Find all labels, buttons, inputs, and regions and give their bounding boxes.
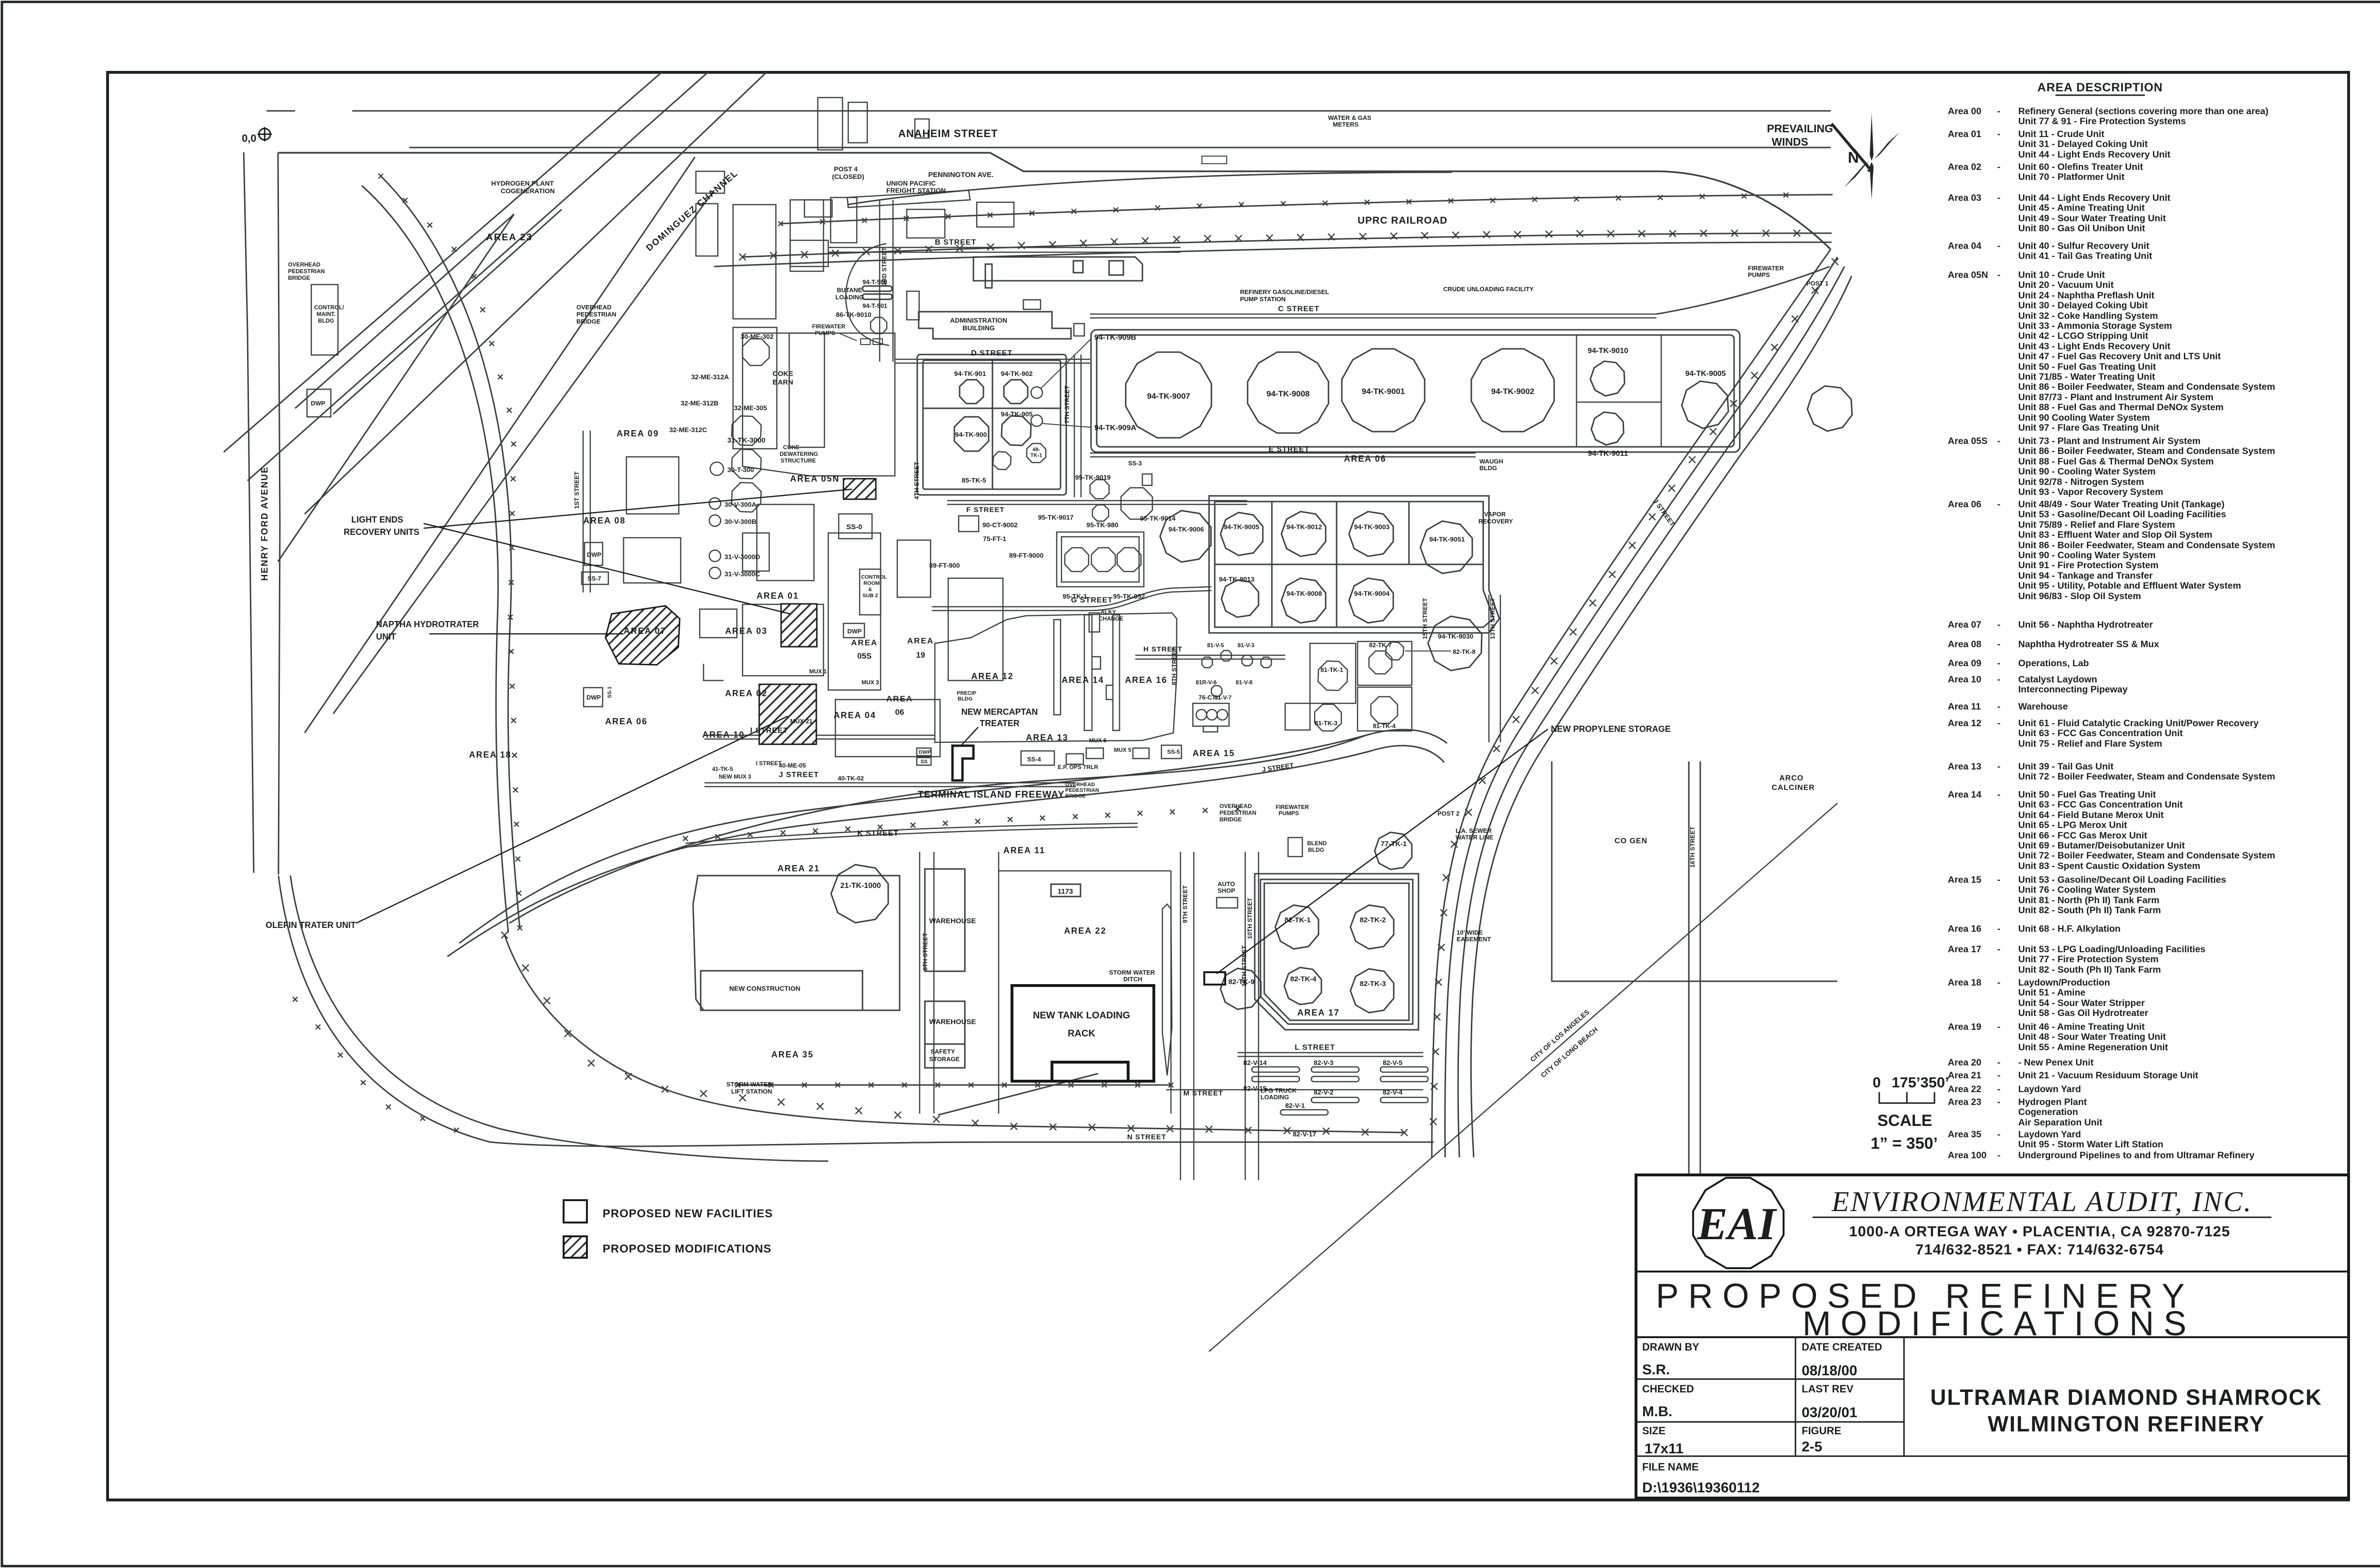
svg-text:EAI: EAI <box>1696 1198 1777 1249</box>
svg-text:STORM WATER: STORM WATER <box>1109 969 1155 976</box>
svg-text:PUMPS: PUMPS <box>1748 271 1770 278</box>
svg-text:STORM WATER: STORM WATER <box>726 1081 773 1088</box>
svg-text:DWP: DWP <box>311 400 326 407</box>
svg-text:Unit 64 - Field Butane Merox: Unit 64 - Field Butane Merox Unit <box>2018 810 2164 820</box>
svg-text:AREA 16: AREA 16 <box>1125 675 1167 685</box>
svg-text:Unit 87/73 - Plant and Instrum: Unit 87/73 - Plant and Instrument Air Sy… <box>2018 392 2213 403</box>
svg-text:LIGHT ENDS: LIGHT ENDS <box>351 515 403 524</box>
svg-text:SS: SS <box>921 759 928 765</box>
svg-text:Unit 73 - Plant and Instrume: Unit 73 - Plant and Instrument Air Syste… <box>2018 436 2201 446</box>
svg-text:95-TK-9014: 95-TK-9014 <box>1140 514 1176 522</box>
svg-text:Unit 86 - Boiler Feedwater,: Unit 86 - Boiler Feedwater, Steam and Co… <box>2018 382 2275 392</box>
svg-text:Unit 20 - Vacuum Unit: Unit 20 - Vacuum Unit <box>2018 280 2114 290</box>
svg-text:Unit 48 - Sour Water Treatin: Unit 48 - Sour Water Treating Unit <box>2018 1032 2166 1042</box>
svg-text:-: - <box>1997 944 2001 955</box>
svg-text:Area 01: Area 01 <box>1948 129 1982 139</box>
svg-text:-: - <box>1997 977 2001 988</box>
svg-text:94-TK-909B: 94-TK-909B <box>1094 334 1136 342</box>
svg-text:94-TK-9005: 94-TK-9005 <box>1685 370 1725 378</box>
svg-text:Area 09: Area 09 <box>1948 658 1982 669</box>
svg-text:BLDG: BLDG <box>1308 847 1324 853</box>
svg-text:94-TK-909A: 94-TK-909A <box>1094 424 1136 432</box>
svg-text:BLDG: BLDG <box>318 317 334 324</box>
svg-text:SCALE: SCALE <box>1877 1112 1932 1130</box>
svg-text:94-TK-902: 94-TK-902 <box>1001 370 1033 377</box>
svg-text:M STREET: M STREET <box>1183 1089 1223 1097</box>
svg-text:ULTRAMAR DIAMOND SHAMROCK: ULTRAMAR DIAMOND SHAMROCK <box>1930 1385 2322 1410</box>
svg-text:PEDESTRIAN: PEDESTRIAN <box>1065 788 1099 793</box>
svg-text:NEW TANK LOADING: NEW TANK LOADING <box>1033 1010 1130 1021</box>
svg-text:Unit 68 - H.F. Alkylation: Unit 68 - H.F. Alkylation <box>2018 924 2121 934</box>
svg-text:Unit 50 - Fuel Gas Treating: Unit 50 - Fuel Gas Treating Unit <box>2018 362 2156 372</box>
svg-text:Unit 65 - LPG Merox Unit: Unit 65 - LPG Merox Unit <box>2018 820 2127 830</box>
svg-text:G STREET: G STREET <box>1071 596 1113 604</box>
svg-text:-: - <box>1997 789 2001 800</box>
svg-text:AREA 35: AREA 35 <box>771 1050 813 1059</box>
svg-text:ARCO: ARCO <box>1779 774 1804 782</box>
svg-text:Unit 40 - Sulfur Recovery Un: Unit 40 - Sulfur Recovery Unit <box>2018 241 2150 251</box>
svg-text:32-ME-305: 32-ME-305 <box>734 404 767 412</box>
svg-text:-: - <box>1997 241 2001 251</box>
svg-text:BARN: BARN <box>773 378 793 386</box>
svg-text:CRUDE UNLOADING FACILITY: CRUDE UNLOADING FACILITY <box>1443 286 1534 293</box>
svg-text:Area 03: Area 03 <box>1948 193 1982 203</box>
svg-text:Area 05N: Area 05N <box>1948 270 1988 280</box>
svg-text:30-ME-302: 30-ME-302 <box>741 333 773 340</box>
svg-text:94-TK-9006: 94-TK-9006 <box>1169 525 1204 533</box>
svg-text:WAREHOUSE: WAREHOUSE <box>929 917 976 925</box>
svg-text:DEWATERING: DEWATERING <box>780 451 818 457</box>
svg-text:10TH STREET: 10TH STREET <box>1240 946 1248 987</box>
svg-text:PEDESTRIAN: PEDESTRIAN <box>288 268 325 275</box>
svg-text:&: & <box>868 587 872 592</box>
svg-text:Unit 96/83 - Slop Oil System: Unit 96/83 - Slop Oil System <box>2018 591 2141 602</box>
svg-text:AREA 06: AREA 06 <box>605 717 647 726</box>
svg-text:Unit 44 - Light Ends Recover: Unit 44 - Light Ends Recovery Unit <box>2018 193 2171 203</box>
svg-text:94-TK-9013: 94-TK-9013 <box>1219 575 1255 583</box>
svg-text:81-V-3: 81-V-3 <box>1238 642 1255 649</box>
svg-text:PRECIP: PRECIP <box>957 690 976 696</box>
svg-text:94-TK-9001: 94-TK-9001 <box>1362 387 1405 396</box>
svg-text:BRIDGE: BRIDGE <box>576 318 601 325</box>
svg-text:REFINERY GASOLINE/DIESEL: REFINERY GASOLINE/DIESEL <box>1240 288 1329 296</box>
svg-text:DITCH: DITCH <box>1123 976 1142 983</box>
svg-text:RACK: RACK <box>1068 1028 1095 1039</box>
svg-text:90-CT-9002: 90-CT-9002 <box>982 521 1018 529</box>
svg-text:Area 08: Area 08 <box>1948 639 1982 650</box>
svg-text:CONTROL: CONTROL <box>861 574 887 580</box>
svg-text:BUILDING: BUILDING <box>962 324 995 332</box>
svg-text:Area 14: Area 14 <box>1948 789 1982 800</box>
svg-text:WILMINGTON REFINERY: WILMINGTON REFINERY <box>1988 1411 2265 1436</box>
svg-text:AREA 14: AREA 14 <box>1061 675 1104 685</box>
svg-text:16TH STREET: 16TH STREET <box>1689 827 1696 868</box>
svg-text:L STREET: L STREET <box>1295 1044 1335 1052</box>
svg-text:Refinery General (sections cov: Refinery General (sections covering more… <box>2018 106 2269 117</box>
svg-text:1” = 350’: 1” = 350’ <box>1871 1134 1938 1153</box>
svg-text:40-TK-02: 40-TK-02 <box>838 775 864 782</box>
svg-text:ROOM: ROOM <box>863 581 880 586</box>
svg-text:BLEND: BLEND <box>1307 840 1327 847</box>
svg-text:MUX 1: MUX 1 <box>809 668 827 675</box>
svg-text:DWP: DWP <box>586 694 601 701</box>
svg-text:-: - <box>1997 1084 2001 1095</box>
svg-text:FIREWATER: FIREWATER <box>1748 265 1784 272</box>
svg-text:-: - <box>1997 1057 2001 1068</box>
svg-text:94-TK-9004: 94-TK-9004 <box>1354 590 1390 597</box>
svg-text:Unit 95 - Storm Water Lift S: Unit 95 - Storm Water Lift Station <box>2018 1139 2163 1150</box>
svg-text:Laydown Yard: Laydown Yard <box>2018 1129 2081 1140</box>
svg-text:Unit 55 - Amine Regeneration: Unit 55 - Amine Regeneration Unit <box>2018 1042 2168 1053</box>
svg-text:82-V-1: 82-V-1 <box>1285 1102 1305 1109</box>
svg-text:2-5: 2-5 <box>1802 1439 1822 1455</box>
svg-text:ANAHEIM STREET: ANAHEIM STREET <box>898 128 998 139</box>
svg-text:81-TK-3: 81-TK-3 <box>1315 720 1338 727</box>
svg-text:N STREET: N STREET <box>1127 1133 1166 1141</box>
svg-text:94-TK-900: 94-TK-900 <box>955 431 987 438</box>
svg-text:89-FT-900: 89-FT-900 <box>929 562 960 569</box>
svg-text:Unit 75 - Relief and Flare S: Unit 75 - Relief and Flare System <box>2018 739 2162 749</box>
svg-text:Unit 21 - Vacuum Residuum St: Unit 21 - Vacuum Residuum Storage Unit <box>2018 1070 2199 1081</box>
svg-text:AREA 13: AREA 13 <box>1026 733 1068 742</box>
svg-text:82-V-2: 82-V-2 <box>1314 1088 1333 1096</box>
svg-text:41-TK-5: 41-TK-5 <box>712 766 733 772</box>
svg-text:Unit 94 - Tankage and Transf: Unit 94 - Tankage and Transfer <box>2018 571 2153 581</box>
svg-text:Unit 90 - Cooling Water Syst: Unit 90 - Cooling Water System <box>2018 550 2156 561</box>
svg-text:94-TK-9011: 94-TK-9011 <box>1588 450 1628 458</box>
svg-text:SS-4: SS-4 <box>1027 756 1041 763</box>
svg-text:08/18/00: 08/18/00 <box>1802 1363 1857 1379</box>
svg-text:MODIFICATIONS: MODIFICATIONS <box>1803 1305 2196 1343</box>
svg-text:ADMINISTRATION: ADMINISTRATION <box>950 316 1007 324</box>
svg-text:AREA 04: AREA 04 <box>833 710 876 720</box>
svg-text:Area 16: Area 16 <box>1948 924 1982 934</box>
svg-text:LOADING: LOADING <box>1260 1094 1289 1101</box>
svg-text:SS-3: SS-3 <box>1128 460 1142 467</box>
svg-text:95-TK-9019: 95-TK-9019 <box>1075 473 1111 481</box>
svg-text:8TH STREET: 8TH STREET <box>1170 647 1178 685</box>
svg-text:Unit 39 - Tail Gas Unit: Unit 39 - Tail Gas Unit <box>2018 761 2114 772</box>
svg-text:Air Separation Unit: Air Separation Unit <box>2018 1117 2102 1128</box>
svg-text:Laydown/Production: Laydown/Production <box>2018 977 2110 988</box>
svg-text:FREIGHT STATION: FREIGHT STATION <box>886 187 946 194</box>
svg-text:OVERHEAD: OVERHEAD <box>1220 803 1252 809</box>
svg-text:-: - <box>1997 620 2001 630</box>
svg-text:-: - <box>1997 1129 2001 1140</box>
svg-text:85-TK-5: 85-TK-5 <box>962 476 986 484</box>
svg-text:94-T-501: 94-T-501 <box>863 302 887 309</box>
svg-text:BLDG: BLDG <box>1479 464 1497 472</box>
svg-text:Unit 53 - LPG Loading/Unload: Unit 53 - LPG Loading/Unloading Faciliti… <box>2018 944 2205 955</box>
svg-text:UNIT: UNIT <box>376 632 396 641</box>
svg-text:AREA 12: AREA 12 <box>971 671 1013 681</box>
svg-text:13TH STREET: 13TH STREET <box>1489 598 1496 640</box>
svg-text:03/20/01: 03/20/01 <box>1802 1405 1857 1420</box>
svg-text:1ST STREET: 1ST STREET <box>573 472 580 509</box>
svg-text:Warehouse: Warehouse <box>2018 701 2068 712</box>
svg-text:Unit 53 - Gasoline/Decant Oi: Unit 53 - Gasoline/Decant Oil Loading Fa… <box>2018 875 2226 885</box>
svg-text:AREA 02: AREA 02 <box>725 689 767 698</box>
svg-text:-: - <box>1997 106 2001 117</box>
svg-text:0,0: 0,0 <box>242 132 257 144</box>
svg-text:E.P. OPS TRLR: E.P. OPS TRLR <box>1058 764 1098 770</box>
svg-text:ENVIRONMENTAL AUDIT, INC.: ENVIRONMENTAL AUDIT, INC. <box>1831 1186 2252 1217</box>
svg-text:MUX 3: MUX 3 <box>862 679 879 686</box>
svg-text:Area 20: Area 20 <box>1948 1057 1982 1068</box>
svg-text:81R-V-6: 81R-V-6 <box>1196 679 1217 686</box>
svg-text:N: N <box>1848 149 1859 166</box>
svg-text:30-T-300: 30-T-300 <box>727 466 754 473</box>
svg-text:STORAGE: STORAGE <box>929 1055 960 1063</box>
svg-text:Area 05S: Area 05S <box>1948 436 1987 446</box>
svg-text:SS-5: SS-5 <box>1167 749 1180 755</box>
svg-text:Unit 72 - Boiler Feedwater,: Unit 72 - Boiler Feedwater, Steam and Co… <box>2018 771 2275 782</box>
svg-text:Area 21: Area 21 <box>1948 1070 1982 1081</box>
svg-text:1173: 1173 <box>1058 888 1073 896</box>
svg-text:21-TK-1000: 21-TK-1000 <box>840 882 881 890</box>
svg-text:FIGURE: FIGURE <box>1802 1425 1841 1437</box>
svg-text:Unit 70 - Platformer Unit: Unit 70 - Platformer Unit <box>2018 172 2125 182</box>
svg-text:Unit 86 - Boiler Feedwater,: Unit 86 - Boiler Feedwater, Steam and Co… <box>2018 446 2275 456</box>
svg-text:MUX 6: MUX 6 <box>1089 737 1107 744</box>
svg-text:Area 13: Area 13 <box>1948 761 1982 772</box>
svg-text:ALKY: ALKY <box>1101 609 1116 615</box>
svg-text:J STREET: J STREET <box>779 771 819 779</box>
svg-text:82-TK-4: 82-TK-4 <box>1290 975 1317 983</box>
svg-text:SS-0: SS-0 <box>846 523 862 531</box>
svg-text:Area 100: Area 100 <box>1948 1150 1986 1161</box>
svg-text:Area 19: Area 19 <box>1948 1022 1982 1032</box>
svg-text:Unit 77 & 91 - Fire Protecti: Unit 77 & 91 - Fire Protection Systems <box>2018 116 2186 127</box>
svg-text:82-TK-3: 82-TK-3 <box>1359 980 1386 988</box>
svg-text:48-: 48- <box>1032 447 1040 453</box>
svg-text:AREA: AREA <box>886 694 913 703</box>
svg-text:Unit 92/78 - Nitrogen System: Unit 92/78 - Nitrogen System <box>2018 477 2144 487</box>
svg-text:K STREET: K STREET <box>857 829 899 838</box>
svg-text:Unit 77 - Fire Protection Sy: Unit 77 - Fire Protection System <box>2018 954 2159 965</box>
svg-text:VAPOR: VAPOR <box>1484 511 1506 518</box>
svg-text:LIFT STATION: LIFT STATION <box>731 1088 772 1095</box>
svg-text:94-TK-9010: 94-TK-9010 <box>1587 347 1628 355</box>
svg-text:D STREET: D STREET <box>971 349 1012 357</box>
svg-text:Unit 47 - Fuel Gas Recovery: Unit 47 - Fuel Gas Recovery Unit and LTS… <box>2018 351 2221 362</box>
svg-text:COKE: COKE <box>773 370 793 378</box>
svg-text:Area 11: Area 11 <box>1948 701 1981 712</box>
svg-text:Unit 93 - Vapor Recovery Sys: Unit 93 - Vapor Recovery System <box>2018 487 2163 497</box>
svg-text:PENNINGTON AVE.: PENNINGTON AVE. <box>928 171 993 179</box>
svg-text:SIZE: SIZE <box>1642 1425 1666 1437</box>
svg-text:10TH STREET: 10TH STREET <box>1246 898 1253 939</box>
svg-text:Unit 24 - Naphtha Preflash U: Unit 24 - Naphtha Preflash Unit <box>2018 290 2155 301</box>
svg-text:NEW CONSTRUCTION: NEW CONSTRUCTION <box>729 985 800 992</box>
svg-text:6TH STREET: 6TH STREET <box>922 933 929 971</box>
svg-text:4TH STREET: 4TH STREET <box>913 462 920 500</box>
svg-text:E STREET: E STREET <box>1269 445 1309 454</box>
svg-text:Operations, Lab: Operations, Lab <box>2018 658 2089 669</box>
svg-text:AREA 11: AREA 11 <box>1003 846 1045 855</box>
svg-text:L.A. SEWER: L.A. SEWER <box>1456 827 1492 834</box>
svg-text:WATER & GAS: WATER & GAS <box>1328 114 1371 121</box>
svg-text:Area 10: Area 10 <box>1948 674 1982 685</box>
svg-text:Unit 71/85 - Water Treating Un: Unit 71/85 - Water Treating Unit <box>2018 372 2155 382</box>
svg-text:714/632-8521 • FAX: 714/632-: 714/632-8521 • FAX: 714/632-6754 <box>1915 1241 2164 1258</box>
svg-text:HYDROGEN PLANT: HYDROGEN PLANT <box>491 179 554 187</box>
svg-text:Unit 88 - Fuel Gas and Therm: Unit 88 - Fuel Gas and Thermal DeNOx Sys… <box>2018 402 2223 413</box>
svg-text:Laydown Yard: Laydown Yard <box>2018 1084 2081 1095</box>
svg-text:-: - <box>1997 1070 2001 1081</box>
svg-text:Unit 88 - Fuel Gas & Thermal: Unit 88 - Fuel Gas & Thermal DeNOx Syste… <box>2018 456 2214 467</box>
svg-text:OVERHEAD: OVERHEAD <box>288 261 320 268</box>
svg-text:82-V-4: 82-V-4 <box>1383 1088 1402 1096</box>
svg-text:AREA 23: AREA 23 <box>486 232 533 243</box>
svg-text:AREA 06: AREA 06 <box>1344 454 1386 463</box>
svg-text:SHOP: SHOP <box>1218 887 1235 894</box>
svg-text:30-V-300B: 30-V-300B <box>724 518 756 525</box>
svg-text:Naphtha Hydrotreater SS & Mux: Naphtha Hydrotreater SS & Mux <box>2018 639 2159 650</box>
svg-text:94-TK-905: 94-TK-905 <box>1001 410 1033 418</box>
svg-text:Unit 66 - FCC Gas Merox Unit: Unit 66 - FCC Gas Merox Unit <box>2018 830 2147 841</box>
svg-text:SS-7: SS-7 <box>587 575 601 582</box>
svg-text:AREA 10: AREA 10 <box>702 730 744 740</box>
svg-text:Interconnecting Pipeway: Interconnecting Pipeway <box>2018 684 2128 695</box>
svg-text:Unit 56 - Naphtha Hydrotreat: Unit 56 - Naphtha Hydrotreater <box>2018 620 2153 630</box>
svg-text:Area 22: Area 22 <box>1948 1084 1982 1095</box>
svg-text:Unit 49 - Sour Water Treatin: Unit 49 - Sour Water Treating Unit <box>2018 213 2166 224</box>
svg-text:Unit 97 - Flare Gas Treating: Unit 97 - Flare Gas Treating Unit <box>2018 423 2159 433</box>
svg-text:Unit 53 - Gasoline/Decant Oi: Unit 53 - Gasoline/Decant Oil Loading Fa… <box>2018 509 2226 520</box>
svg-text:Unit 44 - Light Ends Recover: Unit 44 - Light Ends Recovery Unit <box>2018 149 2171 160</box>
svg-text:7TH STREET: 7TH STREET <box>1063 385 1071 424</box>
svg-text:OVERHEAD: OVERHEAD <box>576 304 612 311</box>
svg-text:AREA 21: AREA 21 <box>777 864 820 873</box>
svg-text:PUMPS: PUMPS <box>1279 810 1299 817</box>
svg-text:30-V-300A: 30-V-300A <box>724 501 756 508</box>
svg-text:Unit 50 - Fuel Gas Treating: Unit 50 - Fuel Gas Treating Unit <box>2018 789 2156 800</box>
svg-text:CONTROL/: CONTROL/ <box>314 304 344 311</box>
svg-text:AREA DESCRIPTION: AREA DESCRIPTION <box>2037 81 2163 94</box>
svg-text:Area 12: Area 12 <box>1948 718 1982 729</box>
svg-text:-: - <box>1997 193 2001 203</box>
svg-text:WAREHOUSE: WAREHOUSE <box>929 1018 976 1026</box>
svg-text:94-TK-9002: 94-TK-9002 <box>1491 387 1535 396</box>
svg-text:94-TK-9012: 94-TK-9012 <box>1287 523 1322 531</box>
svg-text:SUB 2: SUB 2 <box>863 593 878 599</box>
svg-text:WAUGH: WAUGH <box>1479 458 1503 465</box>
svg-text:Cogeneration: Cogeneration <box>2018 1107 2078 1117</box>
svg-text:Area 35: Area 35 <box>1948 1129 1982 1140</box>
svg-text:Unit 91 - Fire Protection Sy: Unit 91 - Fire Protection System <box>2018 560 2159 571</box>
svg-text:Unit 31 - Delayed Coking Uni: Unit 31 - Delayed Coking Unit <box>2018 139 2148 149</box>
svg-text:Area 06: Area 06 <box>1948 499 1982 510</box>
svg-text:BUTANE: BUTANE <box>837 286 863 294</box>
svg-text:75-FT-1: 75-FT-1 <box>983 535 1006 542</box>
svg-text:POST 4: POST 4 <box>834 165 858 173</box>
svg-text:Unit 72 - Boiler Feedwater,: Unit 72 - Boiler Feedwater, Steam and Co… <box>2018 850 2275 861</box>
svg-text:STRUCTURE: STRUCTURE <box>781 457 816 464</box>
svg-text:AREA 03: AREA 03 <box>725 626 767 636</box>
svg-text:BRIDGE: BRIDGE <box>1220 816 1242 823</box>
svg-text:CHANGE: CHANGE <box>1099 615 1123 622</box>
svg-text:82-V-5: 82-V-5 <box>1383 1059 1402 1066</box>
svg-text:PROPOSED NEW FACILITIES: PROPOSED NEW FACILITIES <box>603 1207 773 1220</box>
svg-text:Area 07: Area 07 <box>1948 620 1981 630</box>
svg-text:Area 23: Area 23 <box>1948 1097 1982 1107</box>
svg-text:DATE CREATED: DATE CREATED <box>1802 1341 1882 1353</box>
svg-text:-: - <box>1997 129 2001 139</box>
svg-text:40-ME-05: 40-ME-05 <box>779 762 806 769</box>
svg-text:-: - <box>1997 701 2001 712</box>
svg-text:HENRY FORD AVENUE: HENRY FORD AVENUE <box>260 466 270 581</box>
svg-text:Unit 48/49 - Sour Water Treati: Unit 48/49 - Sour Water Treating Unit (T… <box>2018 499 2224 510</box>
svg-text:Unit 43 - Light Ends Recover: Unit 43 - Light Ends Recovery Unit <box>2018 341 2171 352</box>
svg-text:DRAWN BY: DRAWN BY <box>1642 1341 1699 1353</box>
svg-text:Unit 69 - Butamer/Deisobutan: Unit 69 - Butamer/Deisobutanizer Unit <box>2018 840 2185 851</box>
svg-text:-: - <box>1997 162 2001 172</box>
svg-text:TREATER: TREATER <box>980 719 1020 728</box>
svg-text:Unit 51 - Amine: Unit 51 - Amine <box>2018 987 2085 998</box>
svg-text:I STREET: I STREET <box>756 760 782 767</box>
svg-text:-: - <box>1997 924 2001 934</box>
svg-text:PROPOSED MODIFICATIONS: PROPOSED MODIFICATIONS <box>603 1243 772 1255</box>
svg-text:Unit 61 - Fluid Catalytic Cr: Unit 61 - Fluid Catalytic Cracking Unit/… <box>2018 718 2259 729</box>
svg-text:Unit 54 - Sour Water Strippe: Unit 54 - Sour Water Stripper <box>2018 998 2145 1008</box>
svg-text:Unit 83 - Effluent Water and: Unit 83 - Effluent Water and Slop Oil Sy… <box>2018 530 2212 540</box>
svg-text:Unit 82 - South (Ph II) Tank: Unit 82 - South (Ph II) Tank Farm <box>2018 965 2161 975</box>
svg-text:95-TK-952: 95-TK-952 <box>1113 592 1145 600</box>
svg-text:17x11: 17x11 <box>1645 1441 1684 1457</box>
svg-text:CALCINER: CALCINER <box>1772 784 1815 792</box>
svg-text:FILE NAME: FILE NAME <box>1642 1461 1699 1473</box>
svg-text:PEDESTRIAN: PEDESTRIAN <box>576 311 616 318</box>
svg-text:Underground Pipelines to and f: Underground Pipelines to and from Ultram… <box>2018 1150 2254 1161</box>
svg-text:94-TK-901: 94-TK-901 <box>954 370 986 377</box>
svg-text:PREVAILING: PREVAILING <box>1767 122 1833 135</box>
svg-text:NEW MERCAPTAN: NEW MERCAPTAN <box>962 707 1038 717</box>
svg-text:Unit 86 - Boiler Feedwater,: Unit 86 - Boiler Feedwater, Steam and Co… <box>2018 540 2275 551</box>
svg-text:94-TK-9008: 94-TK-9008 <box>1267 389 1310 398</box>
svg-text:Unit 75/89 - Relief and Flare: Unit 75/89 - Relief and Flare System <box>2018 520 2175 530</box>
svg-text:-: - <box>1997 875 2001 885</box>
svg-text:-: - <box>1997 270 2001 280</box>
svg-text:Unit 90 Cooling Water Sys: Unit 90 Cooling Water System <box>2018 413 2150 423</box>
svg-text:B STREET: B STREET <box>935 238 976 247</box>
svg-text:9TH STREET: 9TH STREET <box>1181 885 1189 923</box>
svg-text:POST 1: POST 1 <box>1806 280 1828 287</box>
svg-text:Unit 58 - Gas Oil Hydrotreat: Unit 58 - Gas Oil Hydrotreater <box>2018 1008 2148 1018</box>
svg-text:AREA 15: AREA 15 <box>1192 749 1235 758</box>
svg-text:Catalyst Laydown: Catalyst Laydown <box>2018 674 2097 685</box>
svg-text:DWP: DWP <box>847 628 862 635</box>
svg-text:FIREWATER: FIREWATER <box>812 323 845 330</box>
svg-text:81-TK-1: 81-TK-1 <box>1320 666 1343 673</box>
svg-text:EASEMENT: EASEMENT <box>1457 936 1491 943</box>
svg-text:- New Penex Unit: - New Penex Unit <box>2018 1057 2094 1068</box>
svg-text:82-TK-8: 82-TK-8 <box>1453 648 1476 655</box>
svg-text:Unit 80 - Gas Oil Unibon Uni: Unit 80 - Gas Oil Unibon Unit <box>2018 223 2145 234</box>
svg-text:AREA 22: AREA 22 <box>1064 926 1106 936</box>
svg-text:AUTO: AUTO <box>1218 880 1235 888</box>
svg-text:-: - <box>1997 718 2001 729</box>
svg-text:POST 2: POST 2 <box>1438 810 1459 817</box>
svg-text:METERS: METERS <box>1333 121 1359 128</box>
svg-text:32-ME-312C: 32-ME-312C <box>669 426 707 434</box>
svg-text:-: - <box>1997 499 2001 510</box>
svg-text:UPRC RAILROAD: UPRC RAILROAD <box>1358 215 1448 226</box>
svg-text:19: 19 <box>916 651 925 660</box>
svg-text:FIREWATER: FIREWATER <box>1276 804 1309 810</box>
svg-text:-: - <box>1997 639 2001 650</box>
svg-text:NEW MUX 3: NEW MUX 3 <box>719 773 751 780</box>
